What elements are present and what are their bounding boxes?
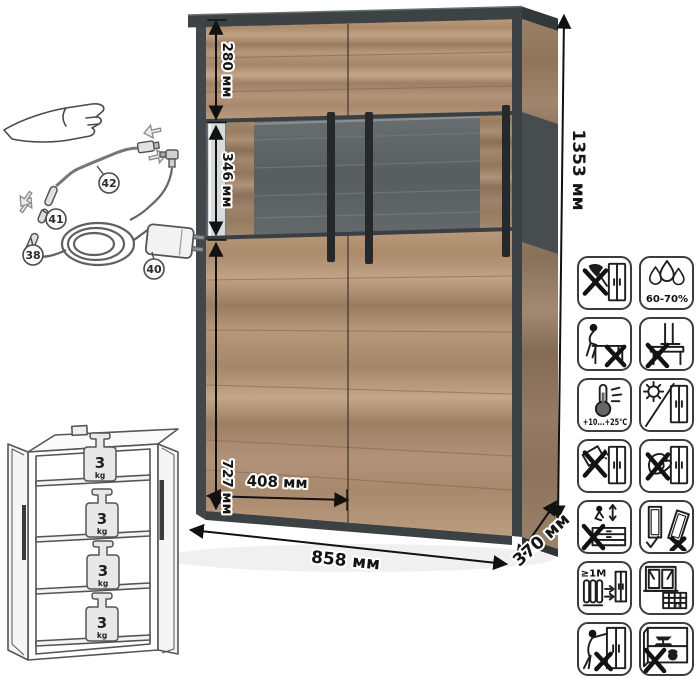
care-icon-humidity-range: 60-70%: [639, 256, 694, 310]
dimension-label-346: 346 мм: [219, 153, 235, 208]
no-sunlight-icon: [642, 381, 692, 429]
care-icon-no-dirty-wet-hands: [639, 439, 694, 493]
weight-unit: kg: [97, 631, 107, 640]
hand-sketch: [4, 104, 104, 142]
left-door-handle: [22, 505, 26, 560]
no-sharp-tools-icon: [580, 259, 630, 307]
upper-doors: [206, 19, 512, 121]
part-number-cable: 42: [101, 177, 116, 190]
vent-tile-number: 25: [673, 603, 681, 609]
care-icons-grid: 60-70% +10...+25°C: [577, 256, 694, 676]
lighting-kit-diagram: 42 41 38 40: [4, 104, 205, 279]
part-number-led-strip: 38: [25, 249, 40, 262]
right-door-open: [158, 444, 178, 654]
no-pushing-icon: [580, 625, 630, 673]
humidity-label: 60-70%: [645, 294, 687, 305]
weight-unit: kg: [97, 527, 107, 536]
cabinet-photo: [188, 7, 558, 558]
part-number-adapter: 40: [146, 263, 162, 276]
humidity-icon: 60-70%: [642, 259, 692, 307]
top-fitting: [72, 426, 87, 436]
care-icon-no-spilling-liquids: [577, 439, 632, 493]
care-icon-no-pushing-to-move: [577, 622, 632, 676]
connect-arrow-icon: [143, 123, 162, 139]
left-carcass-edge: [196, 26, 206, 520]
dimension-label-1353: 1353 мм: [568, 129, 588, 210]
temperature-icon: +10...+25°C: [580, 381, 630, 429]
dimension-label-408: 408 мм: [246, 472, 308, 492]
care-icon-keep-panels-upright: [639, 500, 694, 554]
heater-distance-label: ≥1M: [580, 568, 606, 579]
side-glass-band: [522, 112, 558, 254]
care-icon-ventilate-room: 25: [639, 561, 694, 615]
weight-unit: kg: [98, 579, 108, 588]
temperature-label: +10...+25°C: [582, 418, 626, 428]
ventilation-icon: 25: [642, 564, 692, 612]
weight-value: 3: [97, 614, 107, 632]
no-heavy-items-icon: [642, 625, 692, 673]
furniture-spec-sheet: 280 мм 346 мм 727 мм 408 мм 858 мм 370 м…: [0, 0, 700, 678]
no-standing-icon: [642, 320, 692, 368]
dimension-label-280: 280 мм: [219, 43, 235, 98]
care-icon-no-climbing-drawers: [577, 500, 632, 554]
care-icon-no-sitting: [577, 317, 632, 371]
shelf-load-diagram: 3 kg 3 kg 3 kg 3 kg: [8, 426, 178, 660]
care-icon-temperature-range: +10...+25°C: [577, 378, 632, 432]
weight-value: 3: [97, 510, 107, 528]
weight-unit: kg: [95, 471, 105, 480]
care-icon-keep-distance-from-heaters: ≥1M: [577, 561, 632, 615]
care-icon-no-direct-sunlight: [639, 378, 694, 432]
no-sitting-icon: [580, 320, 630, 368]
cable-connector: [137, 140, 159, 153]
weight-value: 3: [95, 454, 105, 472]
right-door-handle: [160, 480, 165, 540]
no-climbing-icon: [580, 503, 630, 551]
coiled-cable: [33, 223, 152, 265]
dimension-label-727: 727 мм: [219, 460, 235, 515]
no-spill-icon: [580, 442, 630, 490]
part-number-connector: 41: [48, 213, 63, 226]
panels-upright-icon: [642, 503, 692, 551]
care-icon-no-heavy-items-inside: [639, 622, 694, 676]
weight-value: 3: [98, 562, 108, 580]
shelf-weights: 3 kg 3 kg 3 kg 3 kg: [84, 433, 119, 641]
heater-distance-icon: ≥1M: [580, 564, 630, 612]
arrow-1353: [558, 16, 564, 518]
care-icon-no-standing: [639, 317, 694, 371]
no-dirty-hands-icon: [642, 442, 692, 490]
care-icon-no-sharp-tools: [577, 256, 632, 310]
